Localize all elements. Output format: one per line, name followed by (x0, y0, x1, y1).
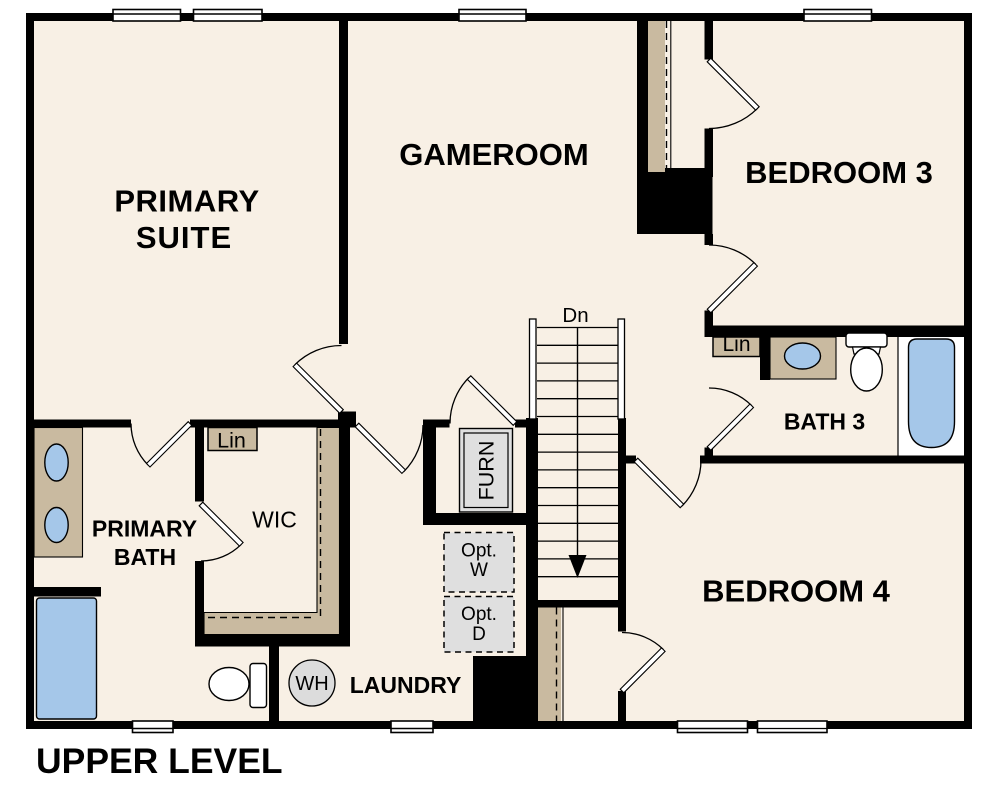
svg-text:WIC: WIC (252, 507, 297, 533)
svg-text:PRIMARY: PRIMARY (114, 184, 259, 219)
svg-text:BATH: BATH (114, 544, 176, 570)
svg-text:BEDROOM 4: BEDROOM 4 (702, 574, 891, 609)
svg-text:FURN: FURN (475, 441, 499, 501)
svg-text:Dn: Dn (562, 304, 588, 327)
svg-text:WH: WH (295, 673, 328, 695)
svg-text:BATH 3: BATH 3 (784, 409, 865, 435)
svg-text:BEDROOM 3: BEDROOM 3 (745, 155, 933, 190)
svg-text:Opt.: Opt. (461, 604, 497, 625)
svg-text:LAUNDRY: LAUNDRY (350, 672, 462, 698)
svg-text:W: W (470, 560, 488, 581)
svg-text:D: D (472, 624, 486, 645)
svg-text:PRIMARY: PRIMARY (92, 516, 197, 542)
svg-text:Opt.: Opt. (461, 541, 497, 562)
svg-text:Lin: Lin (217, 429, 246, 453)
svg-text:GAMEROOM: GAMEROOM (399, 137, 588, 172)
svg-text:UPPER LEVEL: UPPER LEVEL (36, 741, 283, 781)
svg-text:Lin: Lin (722, 333, 750, 356)
svg-text:SUITE: SUITE (136, 220, 232, 255)
